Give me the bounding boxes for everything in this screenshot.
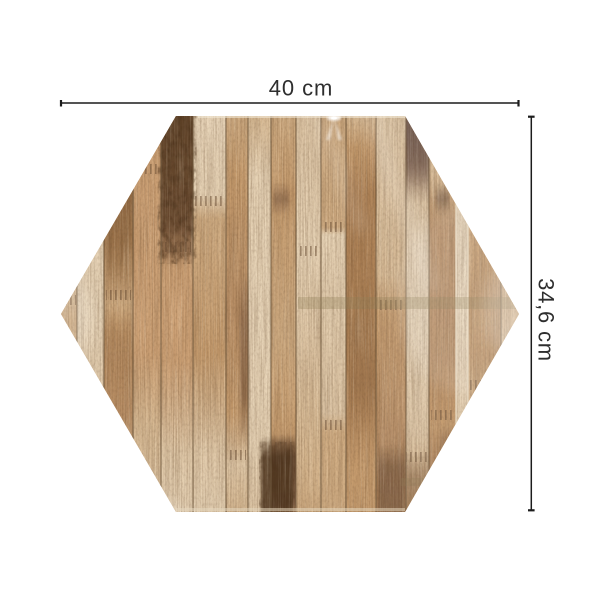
svg-text:40 cm: 40 cm	[269, 76, 333, 101]
svg-text:34,6 cm: 34,6 cm	[534, 278, 559, 362]
